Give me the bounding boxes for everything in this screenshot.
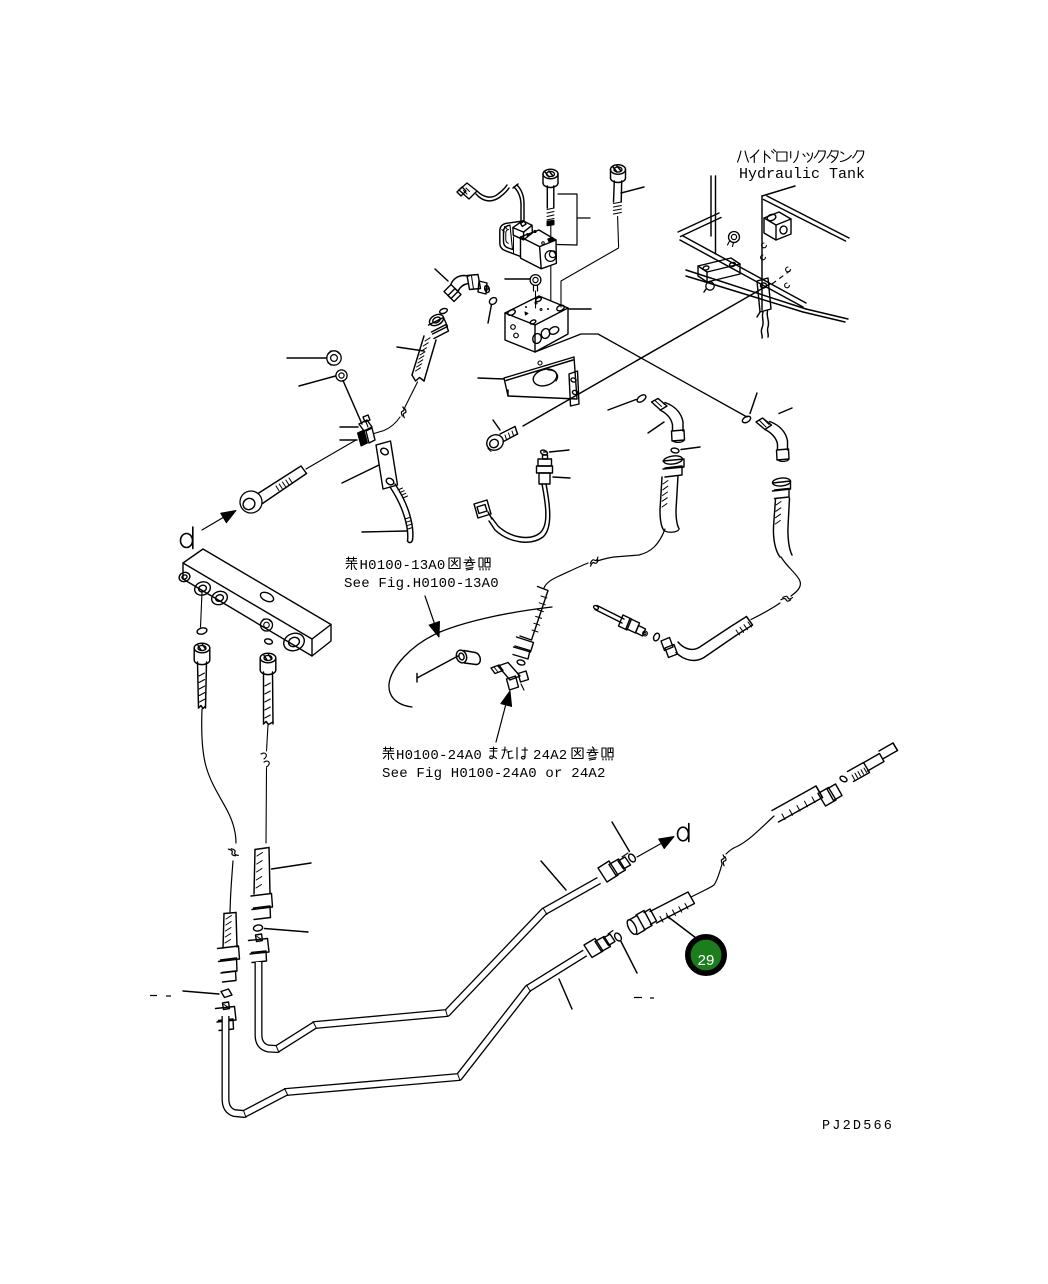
svg-text:29: 29: [698, 952, 715, 969]
svg-text:PJ2D566: PJ2D566: [822, 1119, 894, 1134]
svg-text:H0100-13A0: H0100-13A0: [360, 558, 446, 574]
svg-text:H0100-24A0: H0100-24A0: [396, 748, 482, 764]
svg-text:See Fig.H0100-13A0: See Fig.H0100-13A0: [344, 576, 499, 592]
svg-text:See Fig H0100-24A0 or 24A2: See Fig H0100-24A0 or 24A2: [382, 766, 606, 782]
svg-text:Hydraulic Tank: Hydraulic Tank: [739, 166, 865, 183]
svg-text:24A2: 24A2: [533, 748, 567, 764]
